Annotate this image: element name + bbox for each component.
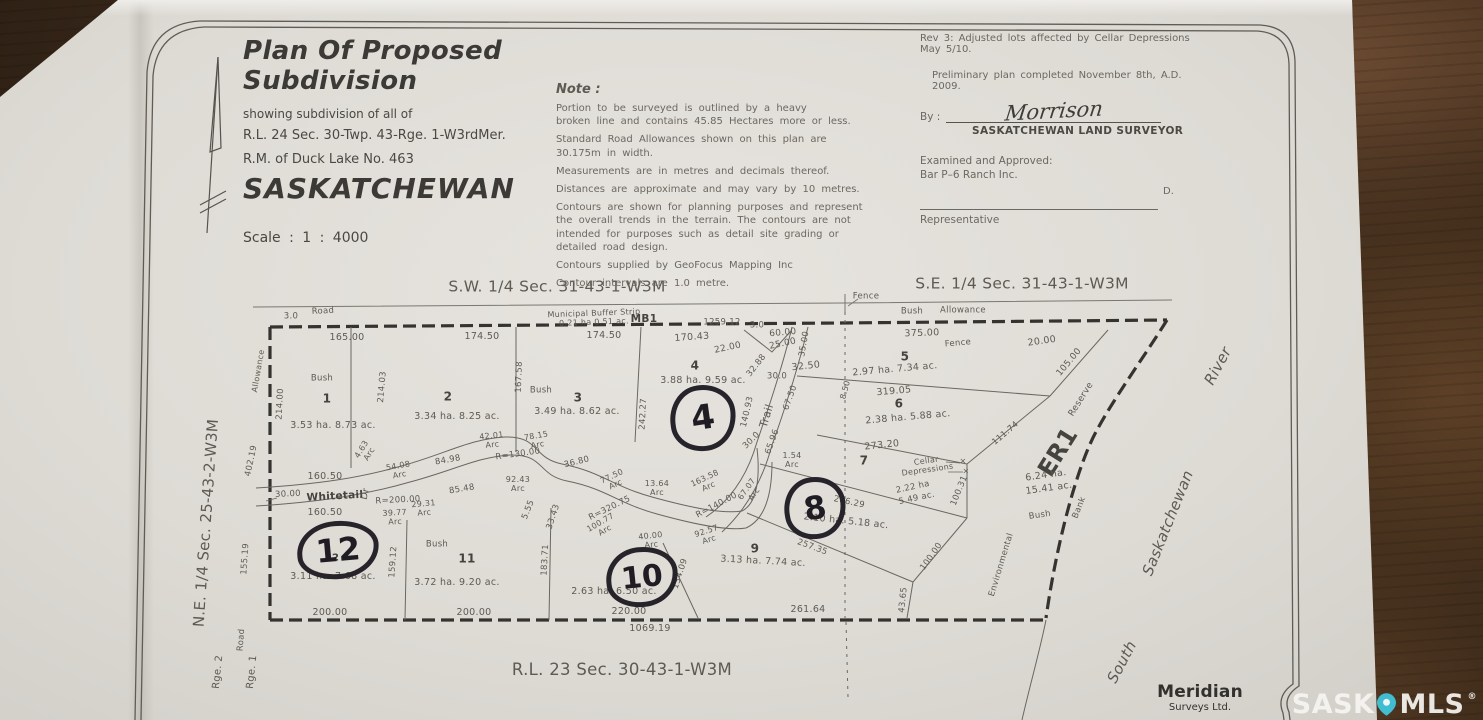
note-item: Contours are shown for planning purposes… — [556, 201, 892, 254]
label-lot-9: 9 — [751, 542, 760, 555]
representative-label: Representative — [920, 214, 1200, 226]
map-label: Bush — [530, 386, 552, 395]
map-label: 3.34 ha. 8.25 ac. — [414, 412, 499, 422]
map-label: 92.43 Arc — [506, 476, 530, 494]
label-lot-2: 2 — [444, 390, 453, 403]
map-label: 3.53 ha. 8.73 ac. — [290, 421, 375, 431]
map-label: 1259.12 — [703, 318, 740, 327]
map-label: 375.00 — [904, 328, 939, 340]
label-rl23: R.L. 23 Sec. 30-43-1-W3M — [512, 661, 732, 679]
map-label: Road — [237, 628, 248, 651]
meridian-company-sub: Surveys Ltd. — [1138, 702, 1262, 713]
map-label: Bush — [901, 307, 923, 316]
signature-line: Morrison — [946, 101, 1161, 123]
map-label: 30.0 — [767, 372, 787, 381]
map-pin-icon — [1377, 693, 1396, 716]
map-label: 1069.19 — [629, 624, 670, 634]
map-label: Allowance — [940, 306, 986, 315]
rural-municipality: R.M. of Duck Lake No. 463 — [243, 152, 588, 167]
map-label: MB1 — [631, 314, 658, 326]
map-label: 3.0 — [284, 312, 298, 321]
revision-note: Rev 3: Adjusted lots affected by Cellar … — [920, 33, 1200, 55]
map-label: 3.49 ha. 8.62 ac. — [534, 407, 619, 417]
map-label: 165.00 — [329, 333, 364, 343]
map-label: 242.27 — [639, 398, 650, 430]
north-arrow-icon — [200, 57, 226, 233]
map-label: 29.31 Arc — [411, 499, 437, 519]
approval-block: Rev 3: Adjusted lots affected by Cellar … — [920, 33, 1200, 226]
map-label: 30.00 — [275, 490, 301, 501]
corner-initial: D. — [1163, 186, 1174, 197]
label-lot-3: 3 — [574, 391, 583, 404]
map-label: Road — [312, 307, 335, 318]
note-item: Contours supplied by GeoFocus Mapping In… — [556, 259, 892, 272]
scale-note: Scale : 1 : 4000 — [243, 230, 588, 246]
label-lot-4: 4 — [691, 359, 700, 372]
saskmls-watermark: SASK MLS ® — [1292, 689, 1477, 720]
map-label: 3.72 ha. 9.20 ac. — [414, 578, 499, 588]
by-label: By : — [920, 111, 940, 123]
label-se-quarter: S.E. 1/4 Sec. 31-43-1-W3M — [915, 275, 1129, 292]
surveyor-title: SASKATCHEWAN LAND SURVEYOR — [972, 125, 1200, 137]
map-label: Bush — [426, 540, 448, 549]
section-line — [253, 294, 1172, 312]
watermark-registered-mark: ® — [1468, 692, 1478, 702]
map-label: 261.64 — [790, 605, 825, 615]
map-label: 183.71 — [541, 544, 552, 576]
notes-block: Note : Portion to be surveyed is outline… — [556, 82, 892, 295]
label-lot-6: 6 — [895, 397, 904, 410]
meridian-company-name: Meridian — [1138, 684, 1262, 701]
plan-title: Plan Of Proposed Subdivision — [243, 36, 588, 96]
label-lot-7: 7 — [860, 454, 869, 467]
map-label: 174.50 — [586, 331, 621, 341]
map-label: 160.50 — [307, 508, 342, 518]
label-lot-1: 1 — [323, 392, 332, 405]
note-item: Portion to be surveyed is outlined by a … — [556, 102, 892, 128]
map-label: 214.00 — [276, 388, 287, 420]
meridian-logo: Meridian Surveys Ltd. — [1138, 684, 1262, 713]
map-label: 3.0 — [750, 321, 764, 330]
plan-subtitle: showing subdivision of all of — [243, 107, 588, 121]
representative-line — [920, 209, 1158, 210]
note-item: Measurements are in metres and decimals … — [556, 165, 892, 178]
map-label: 1.54 Arc — [782, 452, 801, 470]
map-label: 13.64 Arc — [645, 480, 669, 498]
title-block: Plan Of Proposed Subdivision showing sub… — [243, 36, 588, 246]
note-item: Distances are approximate and may vary b… — [556, 183, 892, 196]
map-label: 167.58 — [515, 361, 525, 393]
survey-plan-paper: S.W. 1/4 Sec. 31-43-1-W3MS.E. 1/4 Sec. 3… — [0, 0, 1483, 720]
map-label: 39.77 Arc — [382, 509, 407, 528]
note-item: Standard Road Allowances shown on this p… — [556, 133, 892, 159]
label-lot-11: 11 — [458, 552, 475, 565]
note-item: Contour intervals are 1.0 metre. — [556, 277, 892, 290]
notes-heading: Note : — [556, 82, 892, 97]
signature-row: By : Morrison — [920, 101, 1200, 123]
examined-approved: Examined and Approved: Bar P–6 Ranch Inc… — [920, 154, 1200, 182]
map-label: Bush — [311, 374, 333, 383]
watermark-mls-text: MLS — [1399, 689, 1464, 720]
map-label: 42.01 Arc — [479, 431, 505, 451]
map-label: × — [959, 458, 966, 467]
province-name: SASKATCHEWAN — [243, 172, 588, 205]
map-label: 200.00 — [312, 608, 347, 618]
map-label: × — [962, 468, 969, 477]
preliminary-note: Preliminary plan completed November 8th,… — [932, 70, 1200, 92]
photo-scene: S.W. 1/4 Sec. 31-43-1-W3MS.E. 1/4 Sec. 3… — [0, 0, 1483, 720]
legal-description: R.L. 24 Sec. 30-Twp. 43-Rge. 1-W3rdMer. — [243, 128, 588, 143]
map-label: 200.00 — [456, 608, 491, 618]
map-label: 160.50 — [307, 472, 342, 482]
watermark-sask-text: SASK — [1292, 689, 1375, 720]
surveyor-signature: Morrison — [1004, 98, 1104, 124]
map-label: 174.50 — [464, 332, 499, 342]
map-label: 220.00 — [611, 607, 646, 617]
